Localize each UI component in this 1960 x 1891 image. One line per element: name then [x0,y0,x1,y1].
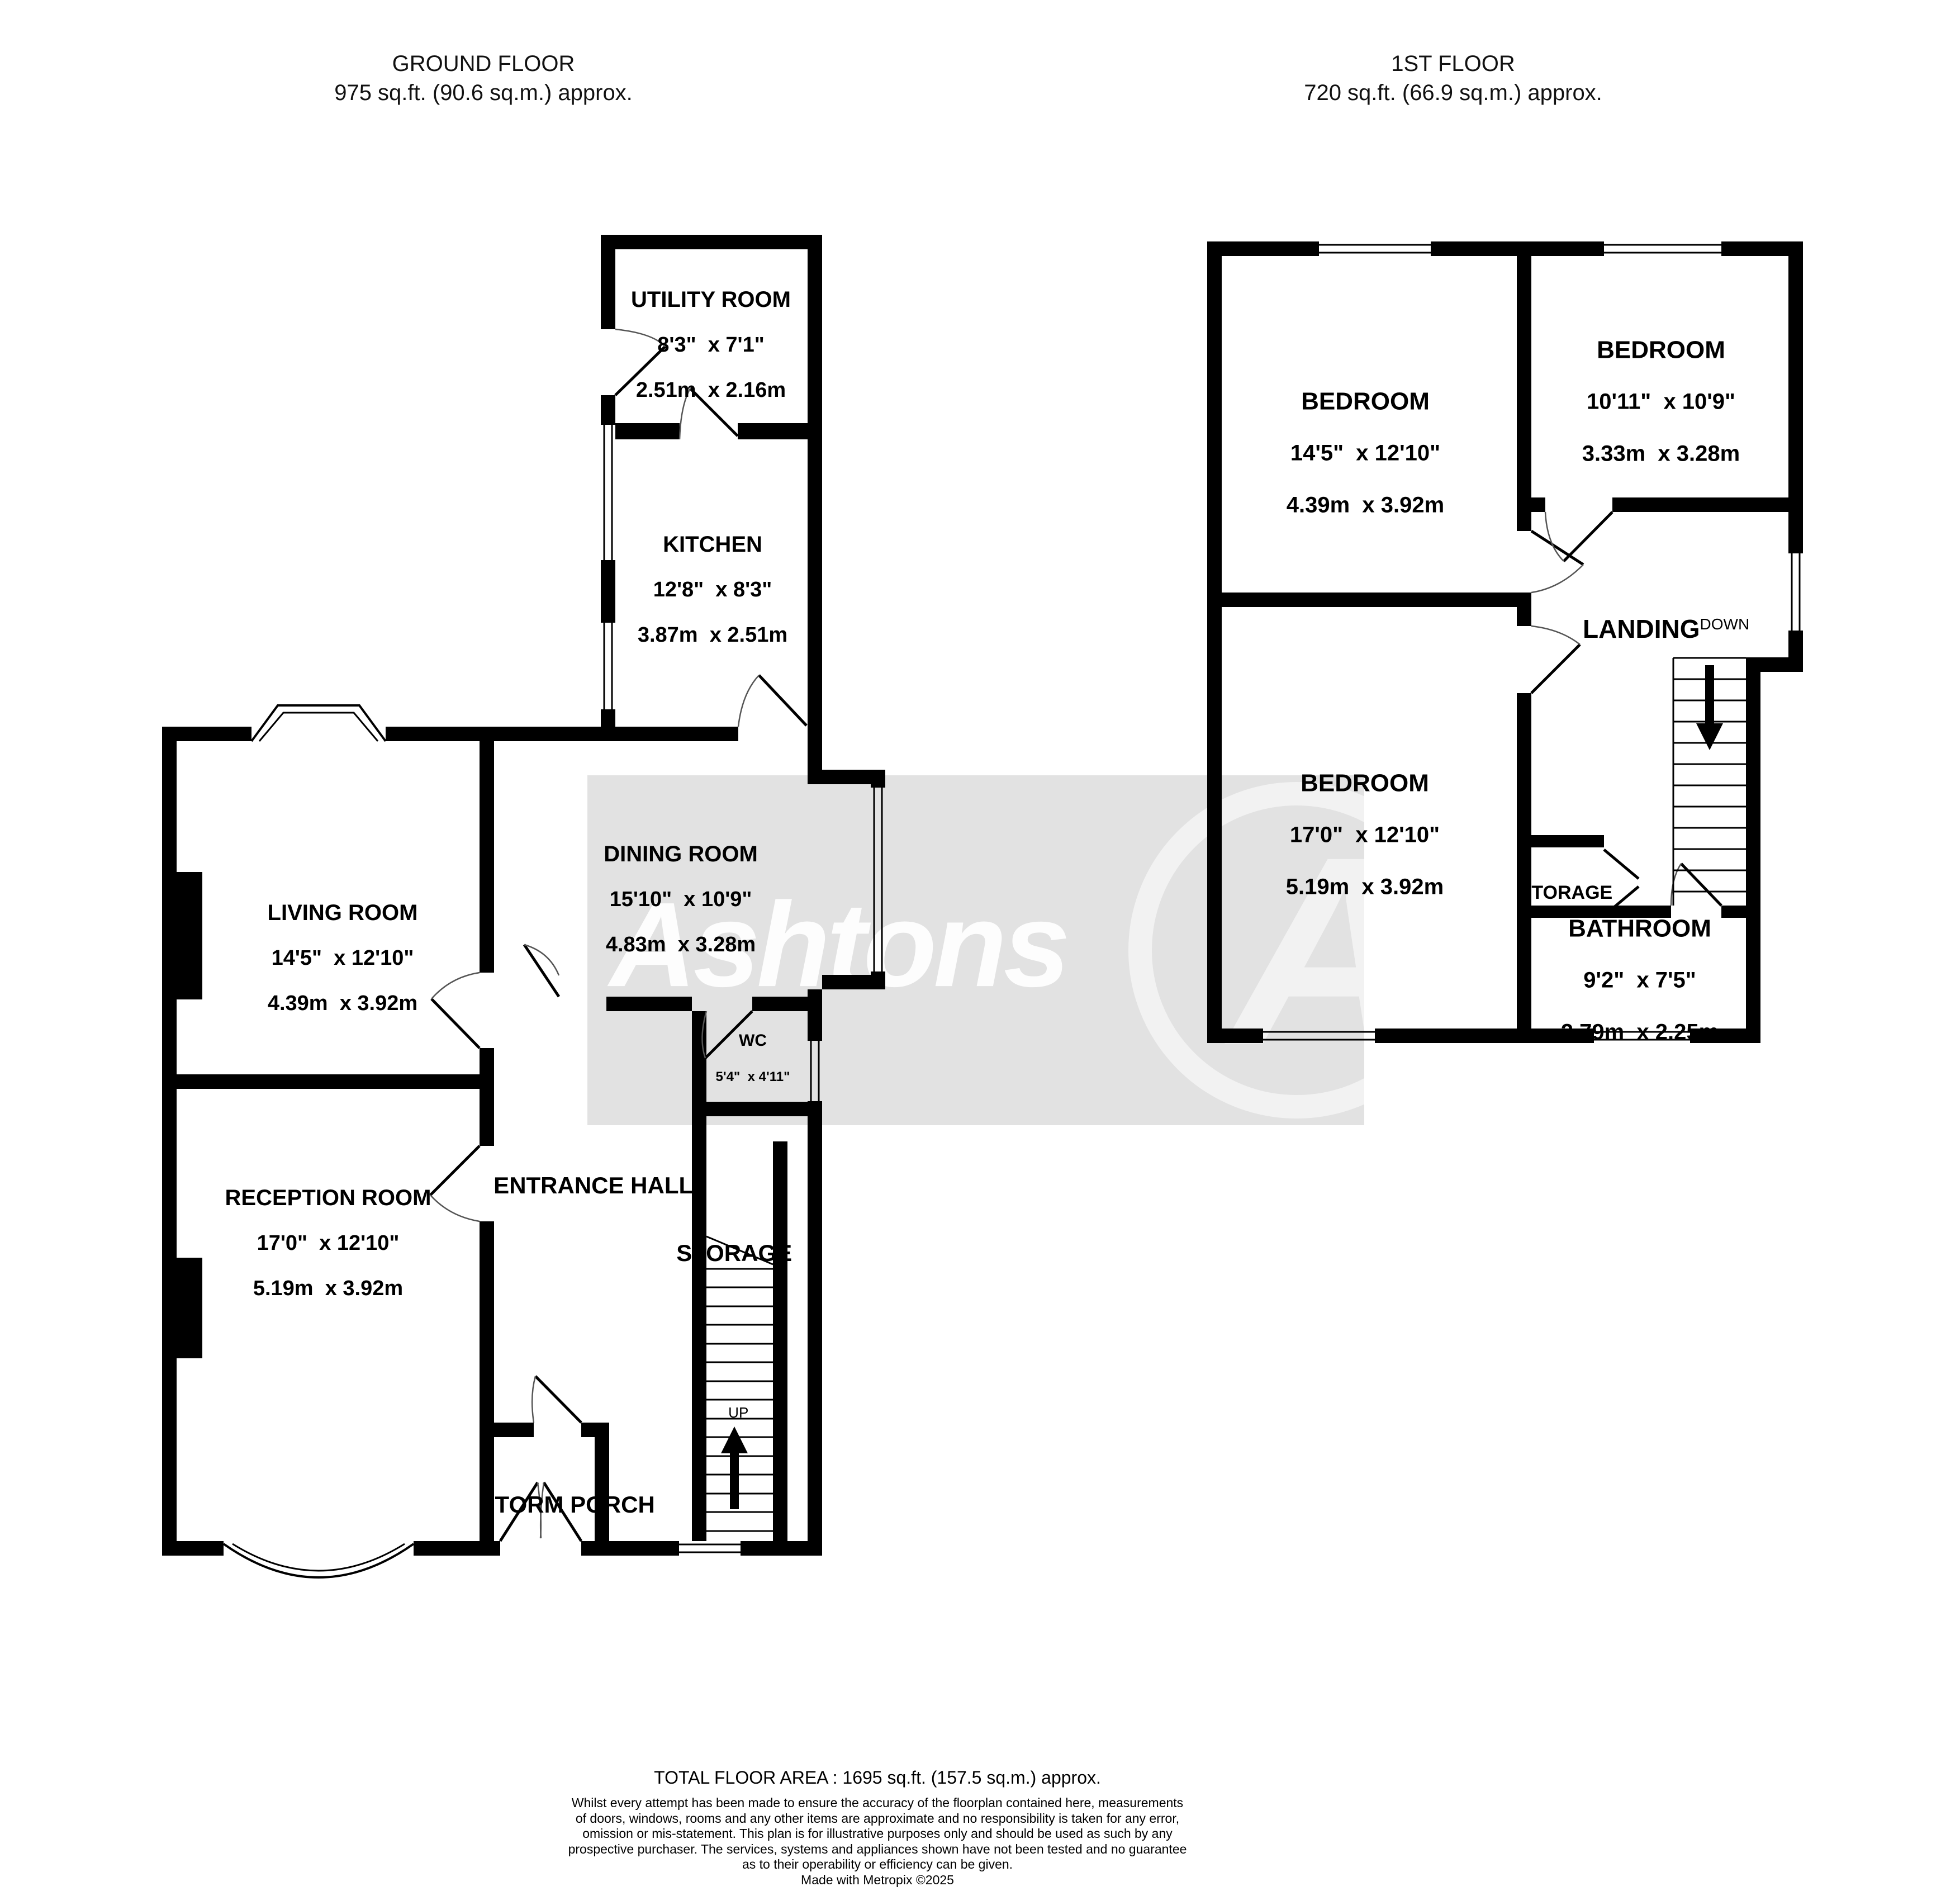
disclaimer-line: Whilst every attempt has been made to en… [572,1795,1183,1810]
living-room-label: LIVING ROOM 14'5" x 12'10" 4.39m x 3.92m [268,880,418,1026]
disclaimer-line: of doors, windows, rooms and any other i… [576,1811,1179,1826]
metropix-credit: Made with Metropix ©2025 [458,1873,1297,1888]
utility-room-label: UTILITY ROOM 8'3" x 7'1" 2.51m x 2.16m [631,267,791,413]
disclaimer-line: omission or mis-statement. This plan is … [582,1826,1173,1841]
bedroom3-label: BEDROOM 17'0" x 12'10" 5.19m x 3.92m [1286,747,1444,913]
wc-label: WC 5'4" x 4'11" 1.63m x 1.49m [705,1012,800,1129]
landing-label: LANDING DOWN [1583,616,1749,642]
storm-porch-label: STORM PORCH [466,1465,655,1518]
floorplan-page: { "ground": { "title": "GROUND FLOOR", "… [0,0,1960,1891]
reception-room-label: RECEPTION ROOM 17'0" x 12'10" 5.19m x 3.… [225,1165,431,1311]
dining-room-label: DINING ROOM 15'10" x 10'9" 4.83m x 3.28m [604,821,758,968]
disclaimer-line: as to their operability or efficiency ca… [742,1857,1013,1871]
total-floor-area: TOTAL FLOOR AREA : 1695 sq.ft. (157.5 sq… [458,1767,1297,1788]
first-floor-doors [1531,512,1721,916]
bedroom2-label: BEDROOM 10'11" x 10'9" 3.33m x 3.28m [1582,314,1740,480]
bedroom1-label: BEDROOM 14'5" x 12'10" 4.39m x 3.92m [1287,366,1444,532]
entrance-hall-label: ENTRANCE HALL [481,1145,693,1199]
disclaimer-line: prospective purchaser. The services, sys… [568,1842,1187,1856]
ground-floor-stairs [706,1236,773,1531]
up-arrow-icon [721,1426,748,1509]
ground-storage-label: STORAGE [663,1213,792,1267]
kitchen-label: KITCHEN 12'8" x 8'3" 3.87m x 2.51m [638,511,787,658]
up-label: UP [720,1387,749,1421]
disclaimer: Whilst every attempt has been made to en… [458,1795,1297,1888]
down-arrow-icon [1696,665,1723,750]
down-label: DOWN [1700,616,1750,633]
bathroom-label: BATHROOM 9'2" x 7'5" 2.79m x 2.25m [1561,893,1719,1059]
